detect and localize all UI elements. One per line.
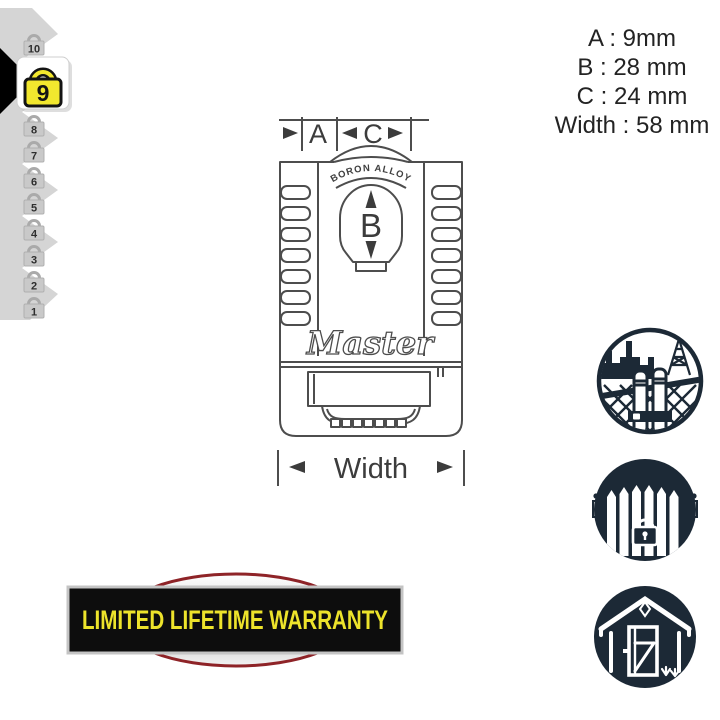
bumper-fin bbox=[281, 207, 310, 220]
bumper-fin bbox=[432, 207, 461, 220]
bumper-fin bbox=[281, 186, 310, 199]
band-lines bbox=[280, 362, 462, 367]
dial-tooth bbox=[386, 419, 395, 427]
dim-arrow-c-left bbox=[342, 127, 357, 139]
fence-gate-icon bbox=[591, 456, 699, 564]
combination-window bbox=[308, 372, 430, 406]
dim-label-width: Width bbox=[334, 453, 408, 485]
picket bbox=[620, 487, 629, 556]
shackle-text: BORON ALLOY bbox=[329, 163, 413, 185]
dim-arrow-c-right bbox=[388, 127, 403, 139]
svg-text:8: 8 bbox=[31, 125, 37, 137]
bumper-fin bbox=[281, 228, 310, 241]
svg-text:6: 6 bbox=[31, 177, 37, 189]
shackle-arc bbox=[334, 157, 408, 162]
band-ticks bbox=[438, 368, 443, 377]
dim-label-a: A bbox=[309, 119, 327, 149]
dial-tooth bbox=[397, 419, 406, 427]
dimension-width-text: Width : 58 mm bbox=[540, 111, 720, 140]
dimensions-panel: A : 9mm B : 28 mm C : 24 mm Width : 58 m… bbox=[540, 24, 720, 140]
garden-shed-icon bbox=[591, 583, 699, 691]
product-image: 10 9 8 7 6 bbox=[0, 0, 720, 720]
bumper-fin bbox=[432, 270, 461, 283]
security-level-meter: 10 9 8 7 6 bbox=[0, 0, 90, 332]
dimension-c-text: C : 24 mm bbox=[540, 82, 720, 111]
bumper-fin bbox=[432, 186, 461, 199]
svg-text:4: 4 bbox=[31, 229, 38, 241]
dimension-b-text: B : 28 mm bbox=[540, 53, 720, 82]
dial-tooth bbox=[364, 419, 373, 427]
door-latch bbox=[623, 649, 628, 653]
svg-text:1: 1 bbox=[31, 307, 37, 319]
dim-arrow-a bbox=[283, 127, 298, 139]
warranty-banner: LIMITED LIFETIME WARRANTY bbox=[62, 570, 466, 674]
dial-tooth bbox=[375, 419, 384, 427]
svg-text:BORON ALLOY: BORON ALLOY bbox=[329, 163, 413, 185]
bumper-fin bbox=[432, 312, 461, 325]
bumper-fin bbox=[281, 270, 310, 283]
svg-text:3: 3 bbox=[31, 255, 37, 267]
dim-arrow-width-left bbox=[289, 461, 305, 473]
bumper-fin bbox=[281, 291, 310, 304]
bumper-fin bbox=[432, 228, 461, 241]
picket bbox=[670, 490, 679, 556]
dimension-a-text: A : 9mm bbox=[540, 24, 720, 53]
lock-diagram: A C bbox=[268, 106, 472, 490]
dial-tooth bbox=[331, 419, 340, 427]
picket bbox=[657, 487, 666, 556]
dim-arrow-width-right bbox=[437, 461, 453, 473]
mini-padlock bbox=[633, 414, 640, 420]
brand-logo: Master bbox=[306, 324, 435, 362]
warranty-text: LIMITED LIFETIME WARRANTY bbox=[82, 605, 388, 635]
svg-text:9: 9 bbox=[37, 80, 50, 106]
bumper-fin bbox=[281, 312, 310, 325]
bumper-fin bbox=[432, 291, 461, 304]
svg-text:2: 2 bbox=[31, 281, 37, 293]
dim-label-c: C bbox=[363, 119, 383, 149]
dial-tooth bbox=[342, 419, 351, 427]
dim-label-b: B bbox=[360, 207, 382, 244]
svg-text:7: 7 bbox=[31, 151, 37, 163]
picket bbox=[607, 490, 616, 556]
dial-tooth bbox=[353, 419, 362, 427]
svg-text:5: 5 bbox=[31, 203, 37, 215]
bumper-fin bbox=[281, 249, 310, 262]
dial-knob bbox=[356, 262, 386, 271]
dial-guard-inner bbox=[327, 409, 415, 419]
svg-text:10: 10 bbox=[28, 44, 40, 56]
bumper-fin bbox=[432, 249, 461, 262]
industrial-site-icon bbox=[596, 327, 704, 435]
